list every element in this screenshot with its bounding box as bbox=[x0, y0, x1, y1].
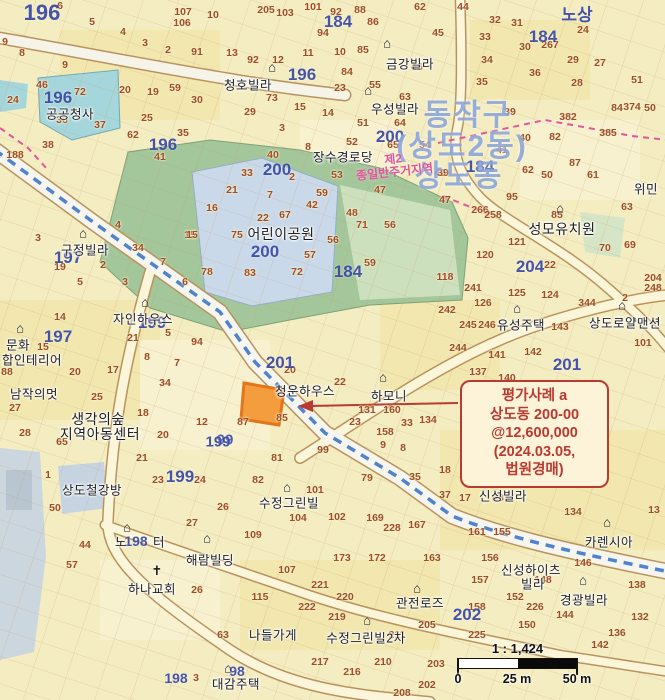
callout-line: (2024.03.05, bbox=[464, 443, 605, 462]
scale-label-50: 50 m bbox=[563, 672, 592, 686]
parcel-grid bbox=[0, 0, 665, 700]
highlighted-parcel bbox=[241, 383, 284, 425]
appraisal-callout: 평가사례 a상도동 200-00@12,600,000(2024.03.05,법… bbox=[460, 380, 609, 488]
callout-line: 상도동 200-00 bbox=[464, 406, 605, 425]
map-canvas: 6543291107106109894672201959243036372562… bbox=[0, 0, 665, 700]
scale-ratio: 1 : 1,424 bbox=[455, 641, 580, 656]
callout-line: 평가사례 a bbox=[464, 387, 605, 406]
scale-label-25: 25 m bbox=[503, 672, 532, 686]
scale-label-0: 0 bbox=[455, 672, 462, 686]
callout-line: @12,600,000 bbox=[464, 424, 605, 443]
scale-bar-black-segment bbox=[518, 659, 577, 668]
callout-line: 법원경매) bbox=[464, 461, 605, 480]
scale-bar-track bbox=[458, 658, 577, 669]
map-background bbox=[0, 0, 665, 700]
